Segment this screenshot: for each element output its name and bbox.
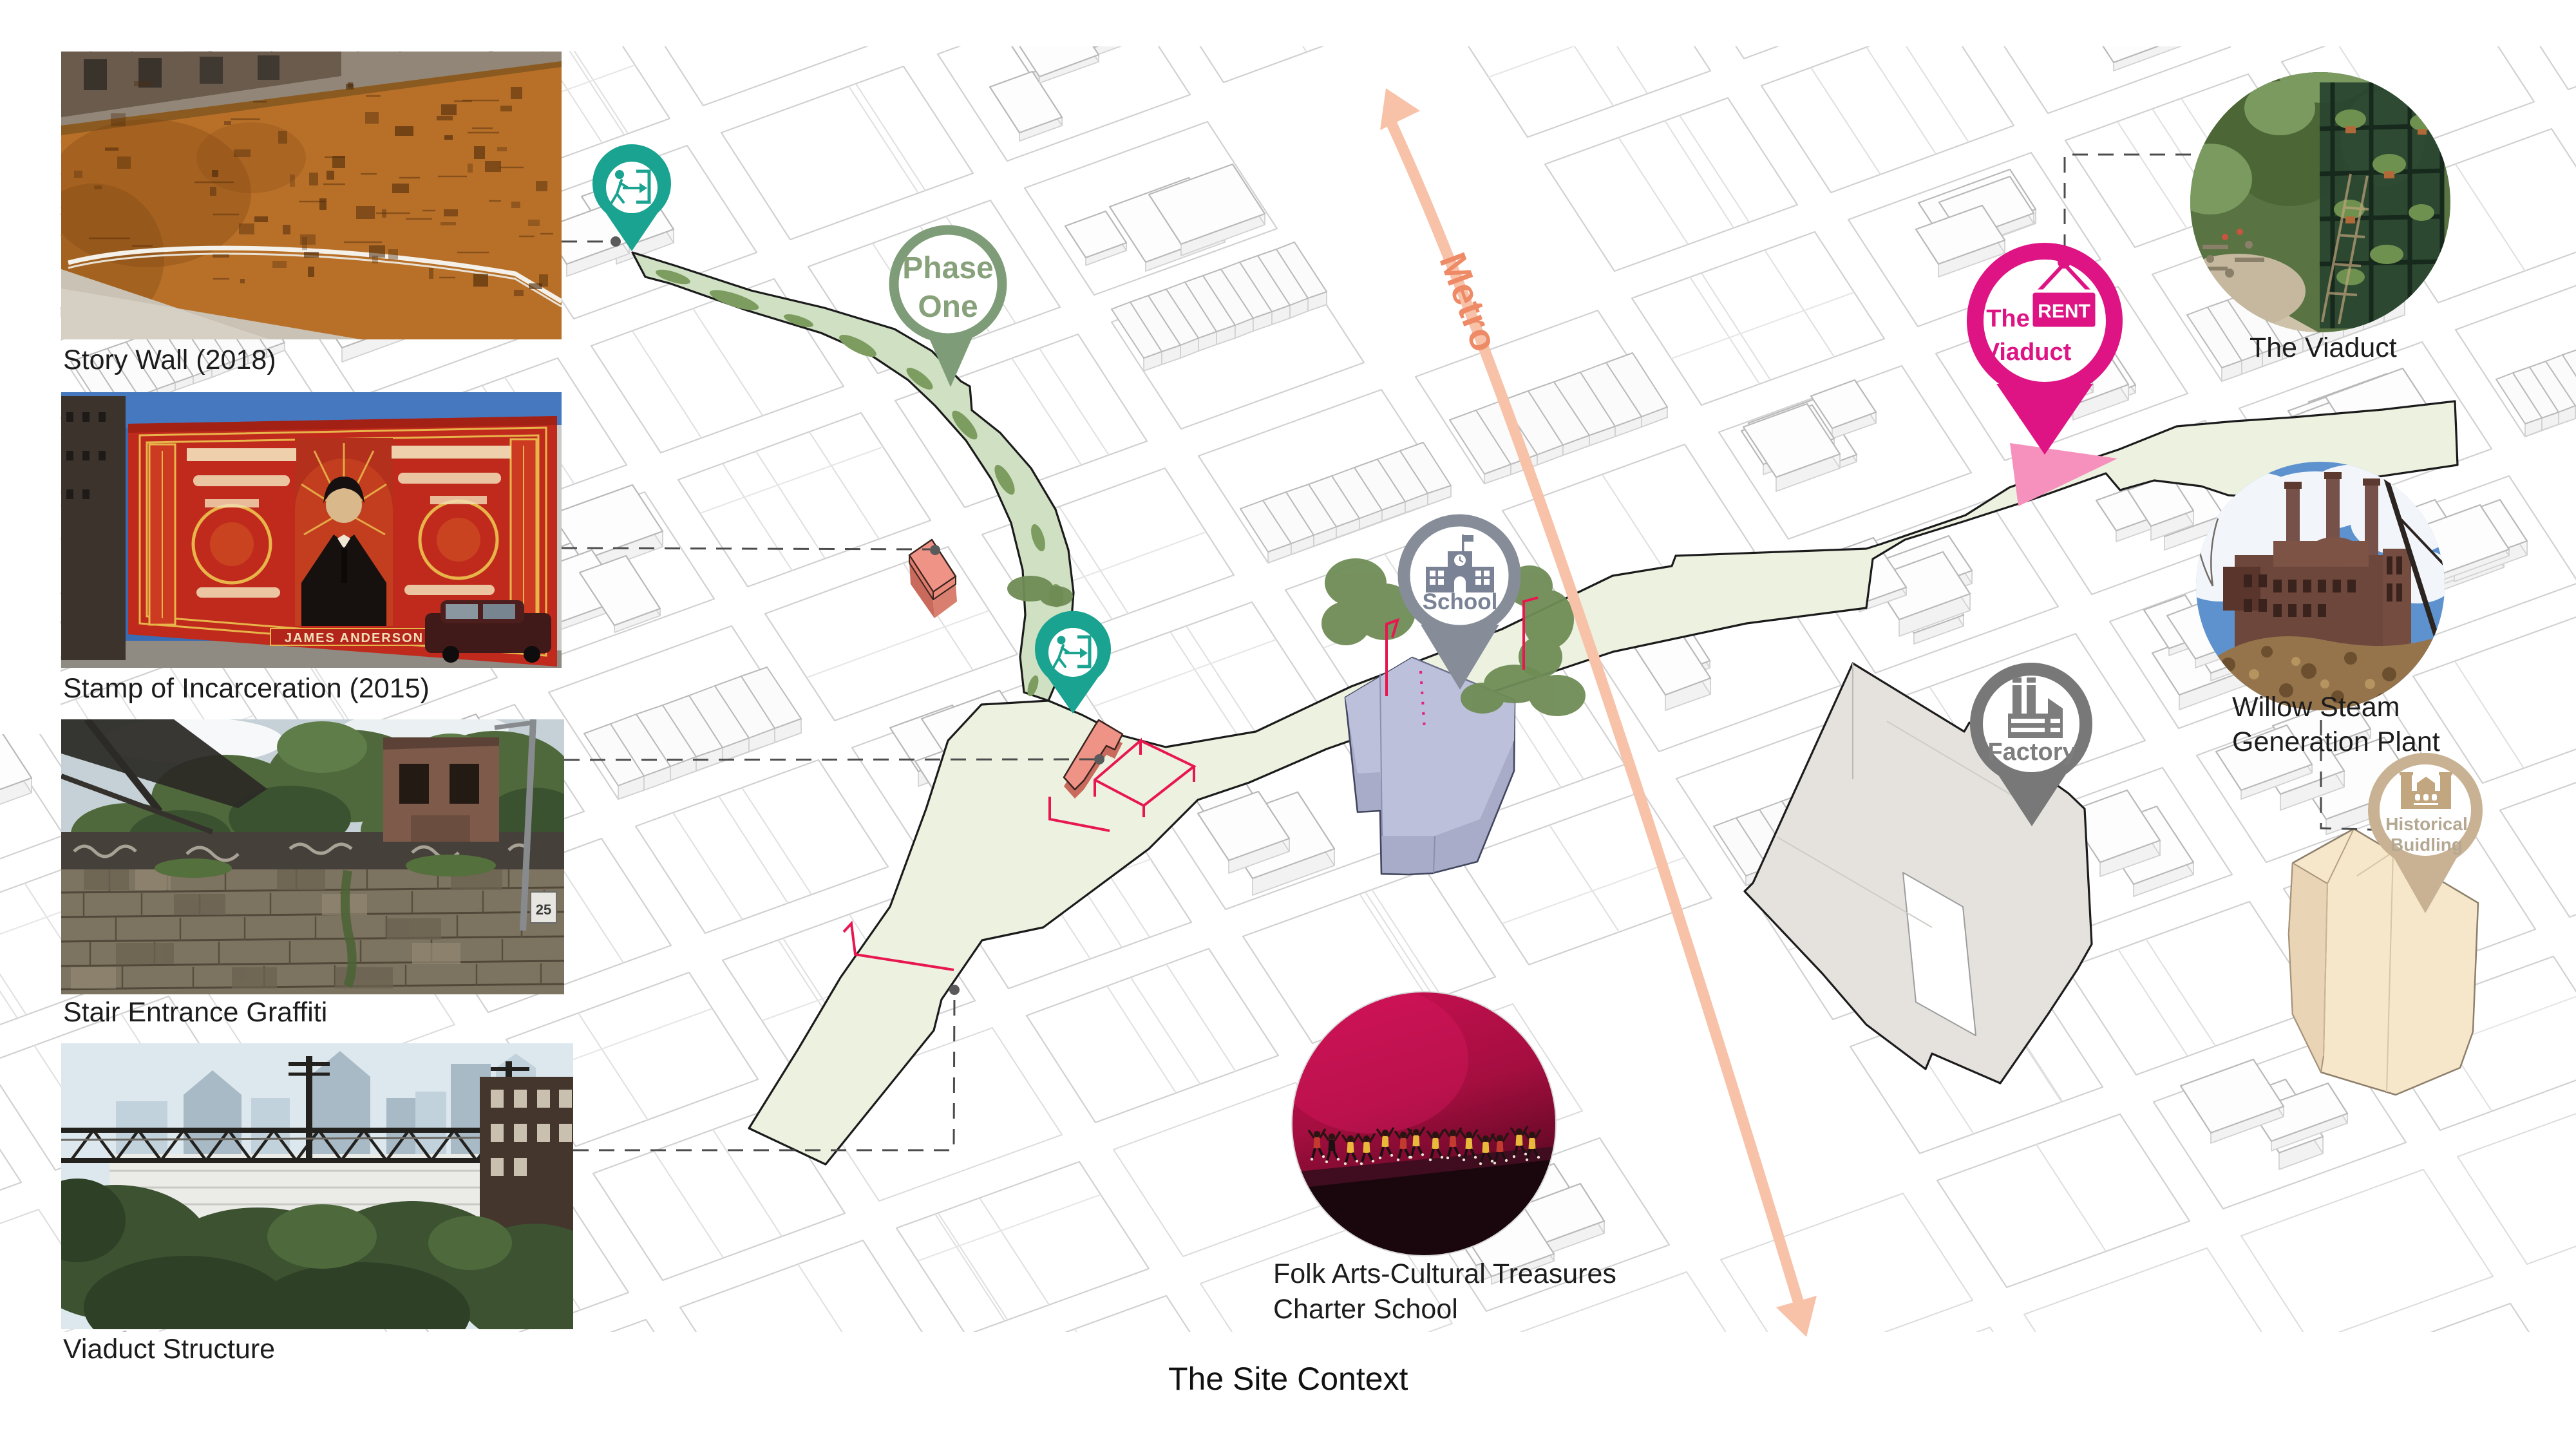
svg-text:Viaduct: Viaduct (1984, 339, 2072, 366)
svg-text:The Viaduct: The Viaduct (2249, 332, 2397, 363)
svg-text:RENT: RENT (2038, 301, 2090, 322)
svg-text:25: 25 (536, 902, 551, 918)
svg-text:Charter School: Charter School (1273, 1294, 1458, 1325)
svg-text:One: One (918, 290, 978, 324)
svg-text:Viaduct Structure: Viaduct Structure (63, 1334, 275, 1365)
svg-text:Story Wall (2018): Story Wall (2018) (63, 345, 276, 375)
svg-text:Factory: Factory (1987, 739, 2076, 766)
svg-text:Phase: Phase (902, 251, 993, 285)
svg-text:JAMES ANDERSON: JAMES ANDERSON (285, 631, 424, 645)
svg-text:Stamp of Incarceration (2015): Stamp of Incarceration (2015) (63, 673, 430, 704)
svg-text:School: School (1423, 589, 1498, 614)
svg-text:Buidling: Buidling (2391, 835, 2463, 855)
svg-text:The: The (1986, 305, 2030, 332)
svg-text:Generation Plant: Generation Plant (2232, 726, 2440, 757)
svg-text:The Site Context: The Site Context (1168, 1361, 1408, 1397)
svg-text:Stair Entrance Graffiti: Stair Entrance Graffiti (63, 997, 327, 1028)
svg-text:Willow Steam: Willow Steam (2232, 692, 2400, 723)
svg-text:Folk Arts-Cultural Treasures: Folk Arts-Cultural Treasures (1273, 1258, 1616, 1289)
svg-text:Historical: Historical (2385, 814, 2468, 834)
